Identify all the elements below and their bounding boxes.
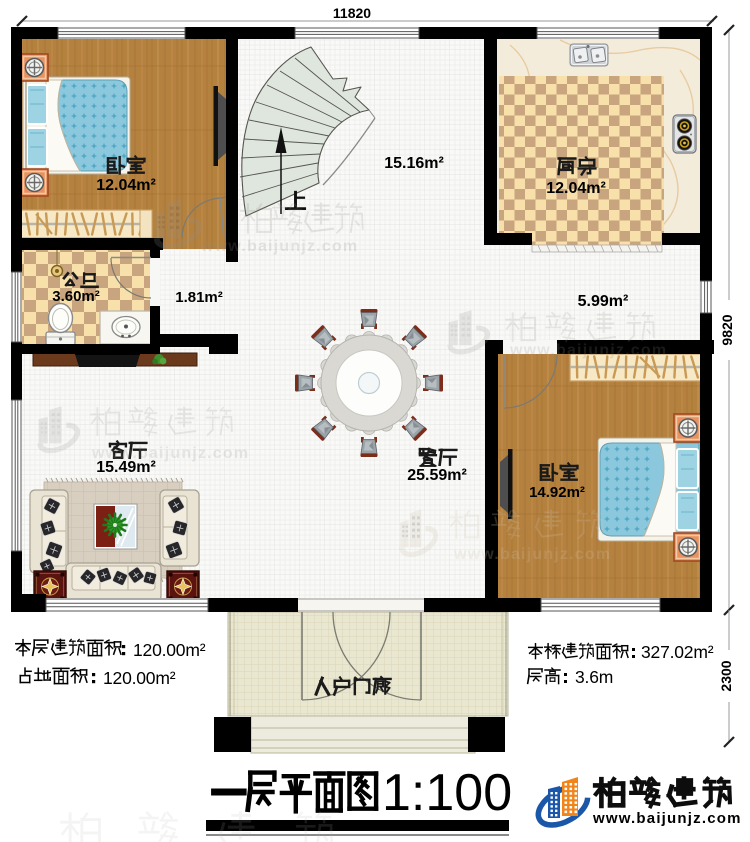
svg-text:120.00m²: 120.00m²: [133, 640, 206, 660]
svg-text:11820: 11820: [333, 5, 371, 21]
svg-text:1:100: 1:100: [382, 764, 512, 822]
svg-text:3.6m: 3.6m: [575, 667, 613, 687]
svg-text:120.00m²: 120.00m²: [103, 668, 176, 688]
svg-text:25.59m²: 25.59m²: [407, 467, 467, 484]
svg-text:9820: 9820: [719, 314, 735, 345]
svg-text:12.04m²: 12.04m²: [96, 177, 156, 194]
svg-text:www.baijunjz.com: www.baijunjz.com: [91, 445, 249, 462]
svg-text:www.baijunjz.com: www.baijunjz.com: [509, 342, 667, 359]
svg-text:1.81m²: 1.81m²: [175, 289, 223, 306]
svg-text:www.baijunjz.com: www.baijunjz.com: [200, 238, 358, 255]
svg-text:www.baijunjz.com: www.baijunjz.com: [592, 810, 742, 827]
svg-text:www.baijunjz.com: www.baijunjz.com: [453, 546, 611, 563]
svg-text:5.99m²: 5.99m²: [578, 293, 629, 310]
svg-text:2300: 2300: [718, 660, 734, 691]
svg-text:3.60m²: 3.60m²: [52, 288, 100, 305]
svg-text:15.16m²: 15.16m²: [384, 155, 444, 172]
svg-text:14.92m²: 14.92m²: [529, 484, 585, 501]
svg-text:327.02m²: 327.02m²: [641, 642, 714, 662]
svg-text:12.04m²: 12.04m²: [546, 180, 606, 197]
